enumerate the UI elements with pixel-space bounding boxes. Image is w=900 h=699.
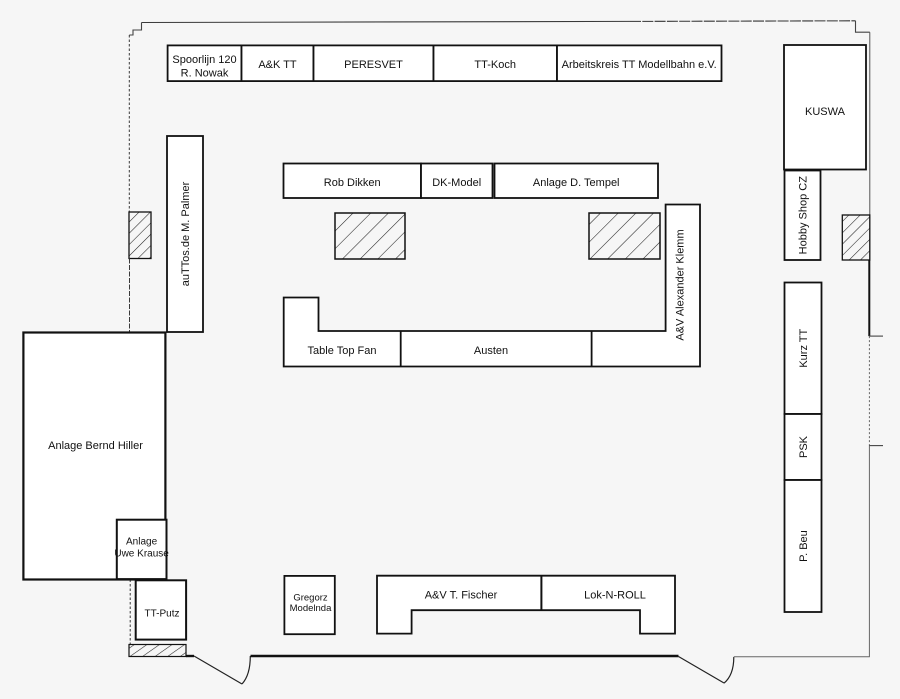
svg-text:KUSWA: KUSWA [805, 106, 846, 118]
svg-text:auTTos.de M. Palmer: auTTos.de M. Palmer [180, 181, 192, 286]
svg-text:Anlage Bernd Hiller: Anlage Bernd Hiller [48, 440, 143, 452]
svg-text:TT-Putz: TT-Putz [144, 609, 179, 620]
svg-text:Lok-N-ROLL: Lok-N-ROLL [584, 590, 646, 602]
svg-text:Anlage D. Tempel: Anlage D. Tempel [533, 177, 620, 189]
svg-text:Spoorlijn 120: Spoorlijn 120 [172, 54, 236, 66]
svg-text:Anlage: Anlage [126, 536, 158, 547]
svg-text:PSK: PSK [798, 435, 810, 458]
svg-text:TT-Koch: TT-Koch [474, 59, 516, 71]
svg-text:Hobby Shop CZ: Hobby Shop CZ [798, 176, 810, 255]
svg-text:Arbeitskreis TT Modellbahn e.V: Arbeitskreis TT Modellbahn e.V. [562, 59, 717, 71]
svg-text:Uwe Krause: Uwe Krause [114, 548, 169, 559]
svg-text:A&V Alexander Klemm: A&V Alexander Klemm [675, 229, 687, 340]
svg-text:Table Top Fan: Table Top Fan [308, 345, 377, 357]
svg-text:PERESVET: PERESVET [344, 59, 403, 71]
svg-text:DK-Model: DK-Model [432, 177, 481, 189]
svg-text:Modelnda: Modelnda [290, 603, 332, 614]
svg-text:Kurz TT: Kurz TT [798, 328, 810, 367]
svg-text:Rob Dikken: Rob Dikken [324, 177, 381, 189]
svg-text:Gregorz: Gregorz [293, 593, 328, 604]
svg-text:R. Nowak: R. Nowak [181, 67, 229, 79]
svg-text:A&K TT: A&K TT [258, 59, 297, 71]
svg-text:Austen: Austen [474, 345, 508, 357]
svg-text:A&V T. Fischer: A&V T. Fischer [425, 590, 498, 602]
svg-text:P. Beu: P. Beu [798, 530, 810, 562]
